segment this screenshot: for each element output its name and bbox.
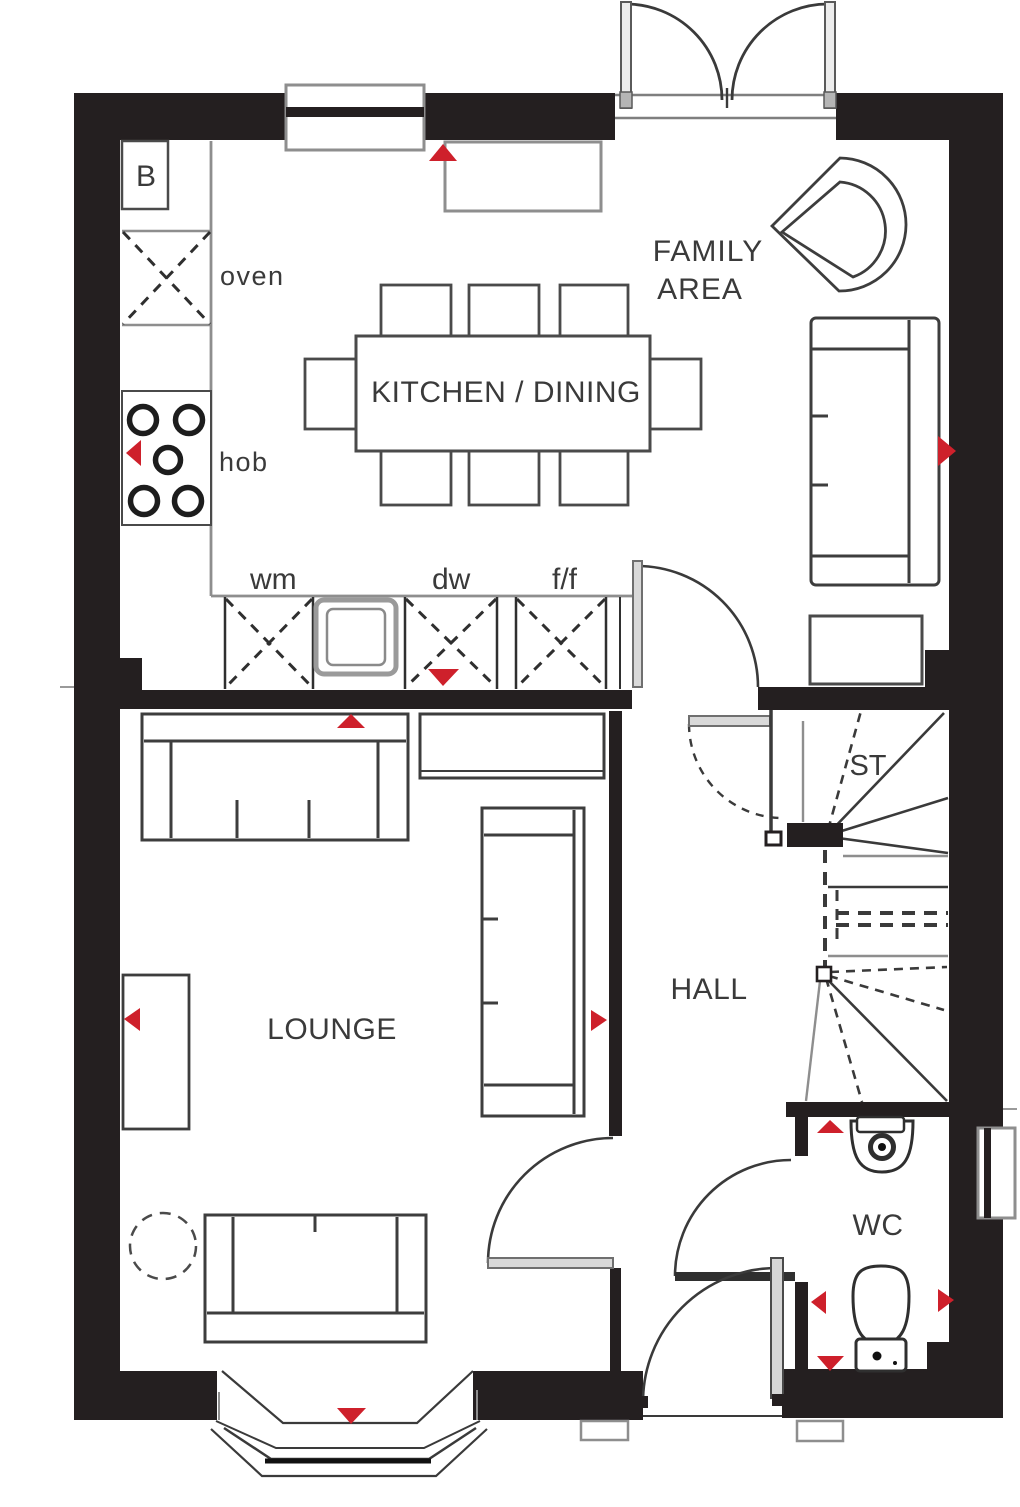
svg-text:FAMILY: FAMILY (653, 235, 763, 268)
svg-text:hob: hob (219, 447, 269, 477)
svg-text:LOUNGE: LOUNGE (267, 1013, 397, 1046)
svg-text:dw: dw (432, 563, 471, 596)
svg-text:ST: ST (849, 750, 886, 782)
svg-text:oven: oven (220, 261, 285, 291)
svg-text:WC: WC (853, 1209, 904, 1242)
svg-text:B: B (136, 160, 156, 193)
svg-text:KITCHEN / DINING: KITCHEN / DINING (371, 376, 641, 409)
svg-text:HALL: HALL (670, 973, 747, 1006)
svg-text:AREA: AREA (657, 273, 743, 306)
svg-text:f/f: f/f (552, 563, 578, 596)
svg-text:wm: wm (249, 563, 297, 596)
